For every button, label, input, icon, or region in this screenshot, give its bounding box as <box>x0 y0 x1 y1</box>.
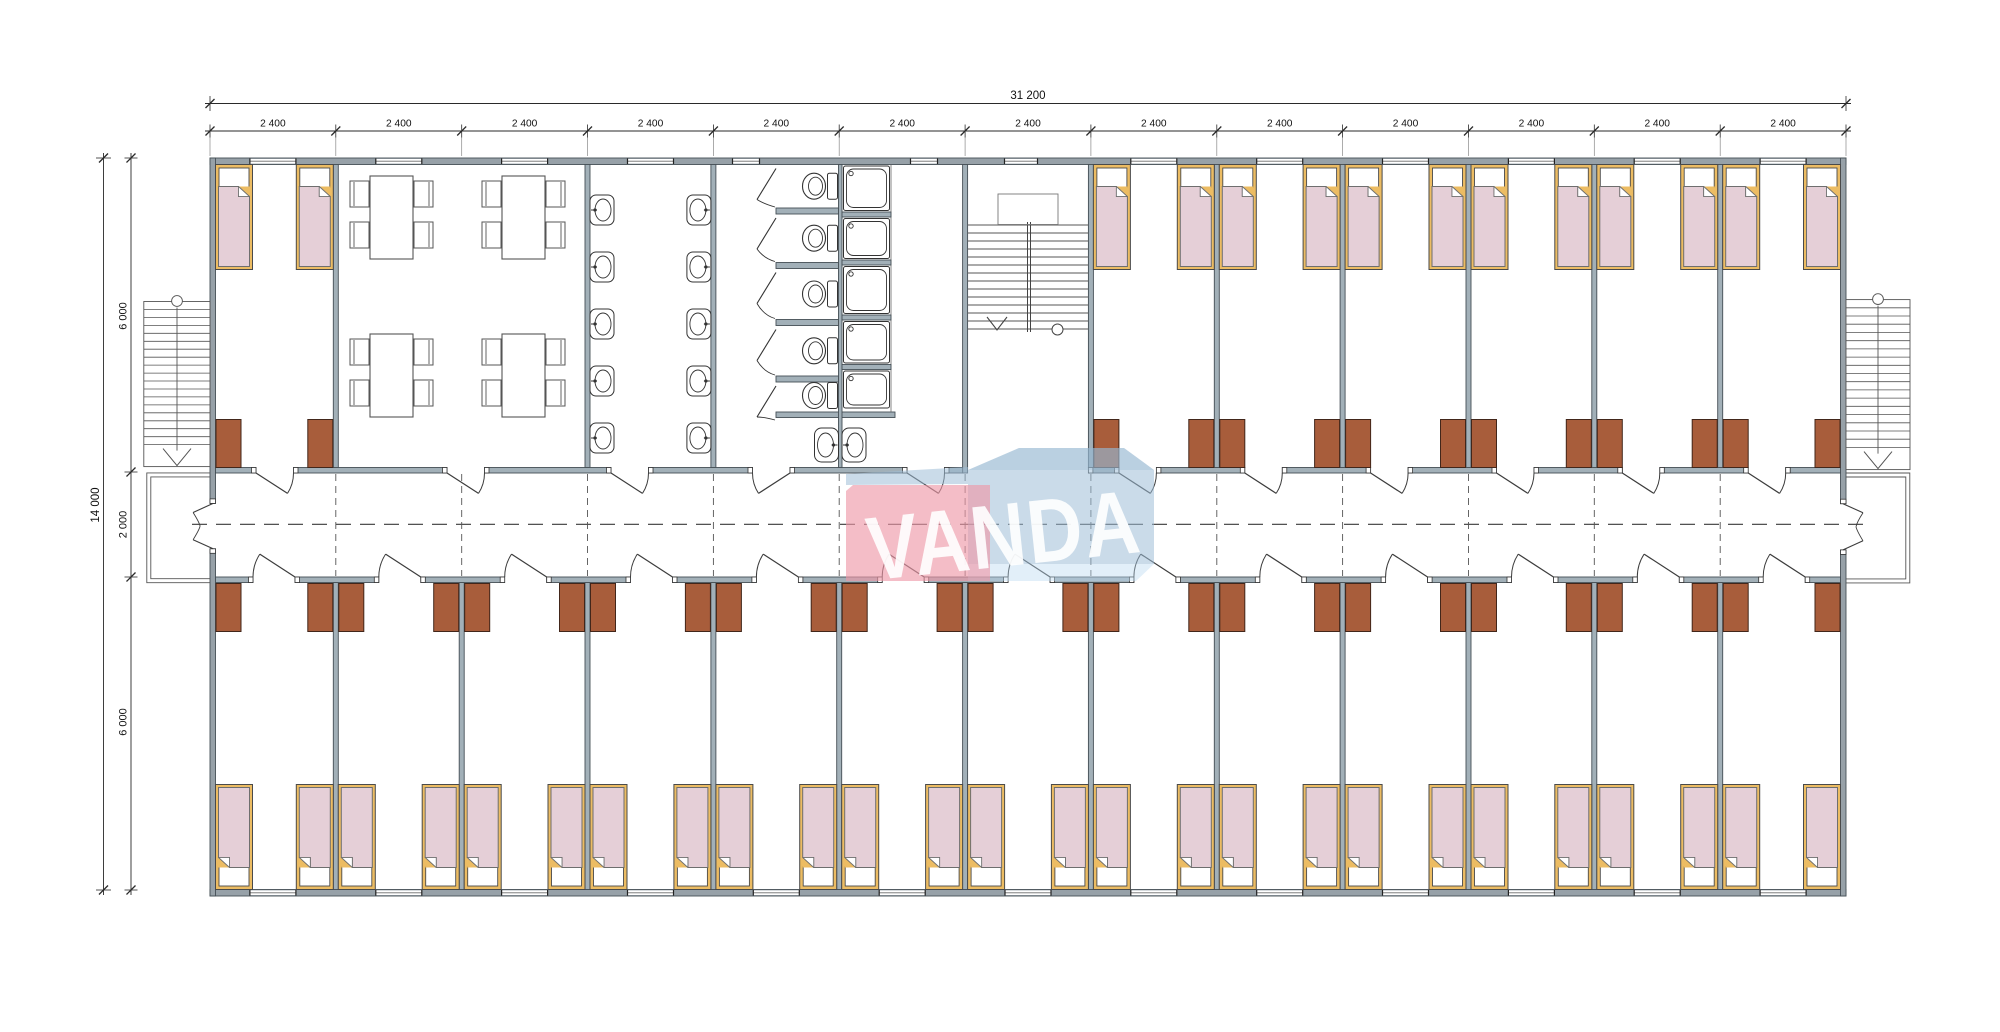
svg-text:2 400: 2 400 <box>512 119 538 130</box>
svg-text:2 400: 2 400 <box>1393 119 1419 130</box>
svg-text:2 400: 2 400 <box>764 119 790 130</box>
svg-text:2 400: 2 400 <box>260 119 286 130</box>
svg-text:2 400: 2 400 <box>1519 119 1545 130</box>
svg-text:2 400: 2 400 <box>1267 119 1293 130</box>
svg-text:2 400: 2 400 <box>889 119 915 130</box>
svg-text:2 000: 2 000 <box>118 511 130 539</box>
svg-text:2 400: 2 400 <box>1015 119 1041 130</box>
svg-text:31 200: 31 200 <box>1010 90 1045 102</box>
svg-text:2 400: 2 400 <box>638 119 664 130</box>
svg-text:6 000: 6 000 <box>118 302 130 330</box>
svg-text:2 400: 2 400 <box>386 119 412 130</box>
svg-text:14 000: 14 000 <box>90 487 102 522</box>
svg-text:6 000: 6 000 <box>118 708 130 736</box>
svg-text:2 400: 2 400 <box>1644 119 1670 130</box>
svg-text:2 400: 2 400 <box>1141 119 1167 130</box>
svg-text:2 400: 2 400 <box>1770 119 1796 130</box>
